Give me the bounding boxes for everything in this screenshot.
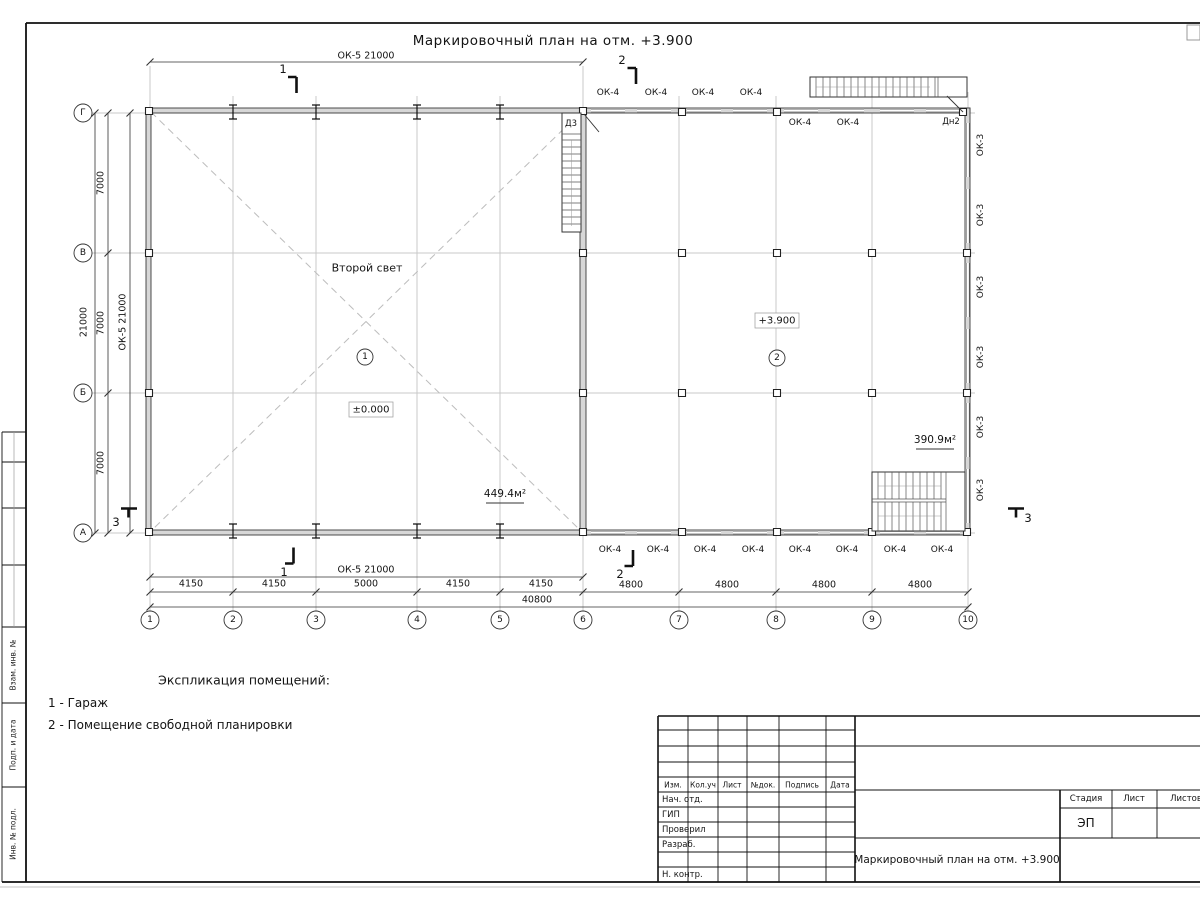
stamp-stadia-header: Стадия: [1070, 794, 1103, 804]
window-mark-ok4: ОК-4: [597, 88, 619, 98]
window-mark-ok3: ОК-3: [976, 346, 986, 368]
grid-axis-1: 1: [147, 615, 153, 625]
section-mark-2-top: 2: [618, 53, 625, 67]
window-mark-ok3: ОК-3: [976, 134, 986, 156]
stamp-doc-title: Маркировочный план на отм. +3.900: [854, 854, 1059, 866]
stamp-header-ndok: №док.: [751, 781, 776, 790]
drawing-title: Маркировочный план на отм. +3.900: [413, 33, 694, 49]
dim-label: 7000: [96, 311, 107, 335]
elevation-mark-0000: ±0.000: [352, 405, 389, 416]
section-mark-3-right: 3: [1024, 511, 1031, 525]
grid-axis-3: 3: [313, 615, 319, 625]
elevation-mark-3900: +3.900: [758, 316, 795, 327]
dim-label: 4150: [446, 579, 470, 590]
interior-stair-bottom: [872, 472, 965, 531]
stamp-row-gip: ГИП: [662, 810, 680, 820]
window-mark-ok3: ОК-3: [976, 276, 986, 298]
door-mark-d3: Д3: [565, 119, 577, 129]
window-mark-ok4: ОК-4: [742, 545, 764, 555]
section-mark-1-top: 1: [279, 62, 286, 76]
explication-heading: Экспликация помещений:: [158, 673, 330, 688]
window-mark-ok4: ОК-4: [645, 88, 667, 98]
stamp-header-koluch: Кол.уч: [690, 781, 716, 790]
room-number-1: 1: [362, 352, 368, 362]
room-note-second-light: Второй свет: [332, 262, 403, 275]
dim-label: 4150: [179, 579, 203, 590]
door-mark-dn2: Дн2: [942, 117, 960, 127]
stamp-row-proveril: Проверил: [662, 825, 706, 835]
window-mark-ok4: ОК-4: [836, 545, 858, 555]
window-mark-ok4: ОК-4: [837, 118, 859, 128]
grid-axis-7: 7: [676, 615, 682, 625]
margin-label-podp: Подп. и дата: [9, 719, 18, 770]
stamp-listov-header: Листов: [1170, 794, 1200, 804]
grid-axis-2: 2: [230, 615, 236, 625]
window-mark-ok4: ОК-4: [884, 545, 906, 555]
walls: [146, 108, 970, 535]
dim-label: 4150: [529, 579, 553, 590]
window-mark-ok3: ОК-3: [976, 479, 986, 501]
stamp-list-header: Лист: [1123, 794, 1145, 804]
plan-drawing: [0, 0, 1200, 900]
dimension-ticks: [92, 59, 972, 611]
grid-lines: [92, 66, 975, 611]
window-mark-ok4: ОК-4: [789, 545, 811, 555]
dimension-lines: [95, 62, 968, 607]
interior-stair-middle: [562, 113, 599, 232]
exterior-stair: [810, 77, 967, 112]
dim-ok5-top: ОК-5 21000: [338, 51, 395, 62]
grid-axis-9: 9: [869, 615, 875, 625]
stamp-stadia-value: ЭП: [1077, 816, 1094, 830]
dim-label: 4800: [715, 580, 739, 591]
room-annotations: [349, 313, 954, 503]
grid-axis-10: 10: [962, 615, 973, 625]
dim-total-left: 21000: [79, 307, 90, 337]
stamp-row-n-kontr: Н. контр.: [662, 870, 703, 880]
grid-axis-5: 5: [497, 615, 503, 625]
dim-ok5-left: ОК-5 21000: [118, 294, 129, 351]
dim-ok5-bottom: ОК-5 21000: [338, 565, 395, 576]
window-mark-ok4: ОК-4: [599, 545, 621, 555]
stamp-row-razrab: Разраб.: [662, 840, 695, 850]
stamp-header-podpis: Подпись: [785, 781, 819, 790]
section-mark-2-bottom: 2: [616, 567, 623, 581]
sheet-frame: [0, 23, 1200, 887]
room-area-2: 390.9м²: [914, 434, 956, 446]
room-number-2: 2: [774, 353, 780, 363]
stamp-header-list: Лист: [722, 781, 741, 790]
dim-label: 4150: [262, 579, 286, 590]
window-mark-ok4: ОК-4: [931, 545, 953, 555]
drawing-sheet: Маркировочный план на отм. +3.900 Экспли…: [0, 0, 1200, 900]
column-squares: [146, 108, 971, 536]
dim-label: 5000: [354, 579, 378, 590]
grid-axis-6: 6: [580, 615, 586, 625]
grid-axis-4: 4: [414, 615, 420, 625]
dim-label: 7000: [96, 171, 107, 195]
stamp-row-nach-otd: Нач. отд.: [662, 795, 703, 805]
dim-label: 7000: [96, 451, 107, 475]
stamp-header-izm: Изм.: [664, 781, 682, 790]
window-mark-ok4: ОК-4: [789, 118, 811, 128]
explication-item: 2 - Помещение свободной планировки: [48, 718, 292, 732]
room-area-1: 449.4м²: [484, 488, 526, 500]
margin-label-vzam: Взам. инв. №: [9, 640, 18, 691]
dim-label: 4800: [619, 580, 643, 591]
window-mark-ok3: ОК-3: [976, 416, 986, 438]
section-mark-3-left: 3: [112, 515, 119, 529]
dim-label: 4800: [908, 580, 932, 591]
window-mark-ok4: ОК-4: [692, 88, 714, 98]
section-mark-1-bottom: 1: [280, 565, 287, 579]
window-mark-ok3: ОК-3: [976, 204, 986, 226]
grid-axis-a: А: [80, 528, 86, 538]
grid-axis-v: В: [80, 248, 86, 258]
grid-axis-8: 8: [773, 615, 779, 625]
second-light-diagonals: [151, 112, 581, 531]
grid-axis-g: Г: [80, 108, 86, 118]
dim-label: 4800: [812, 580, 836, 591]
window-mark-ok4: ОК-4: [694, 545, 716, 555]
margin-label-inv: Инв. № подл.: [9, 808, 18, 860]
window-mark-ok4: ОК-4: [740, 88, 762, 98]
dim-total: 40800: [522, 595, 552, 606]
grid-axis-b: Б: [80, 388, 86, 398]
window-mark-ok4: ОК-4: [647, 545, 669, 555]
stamp-header-data: Дата: [830, 781, 849, 790]
explication-item: 1 - Гараж: [48, 696, 108, 710]
